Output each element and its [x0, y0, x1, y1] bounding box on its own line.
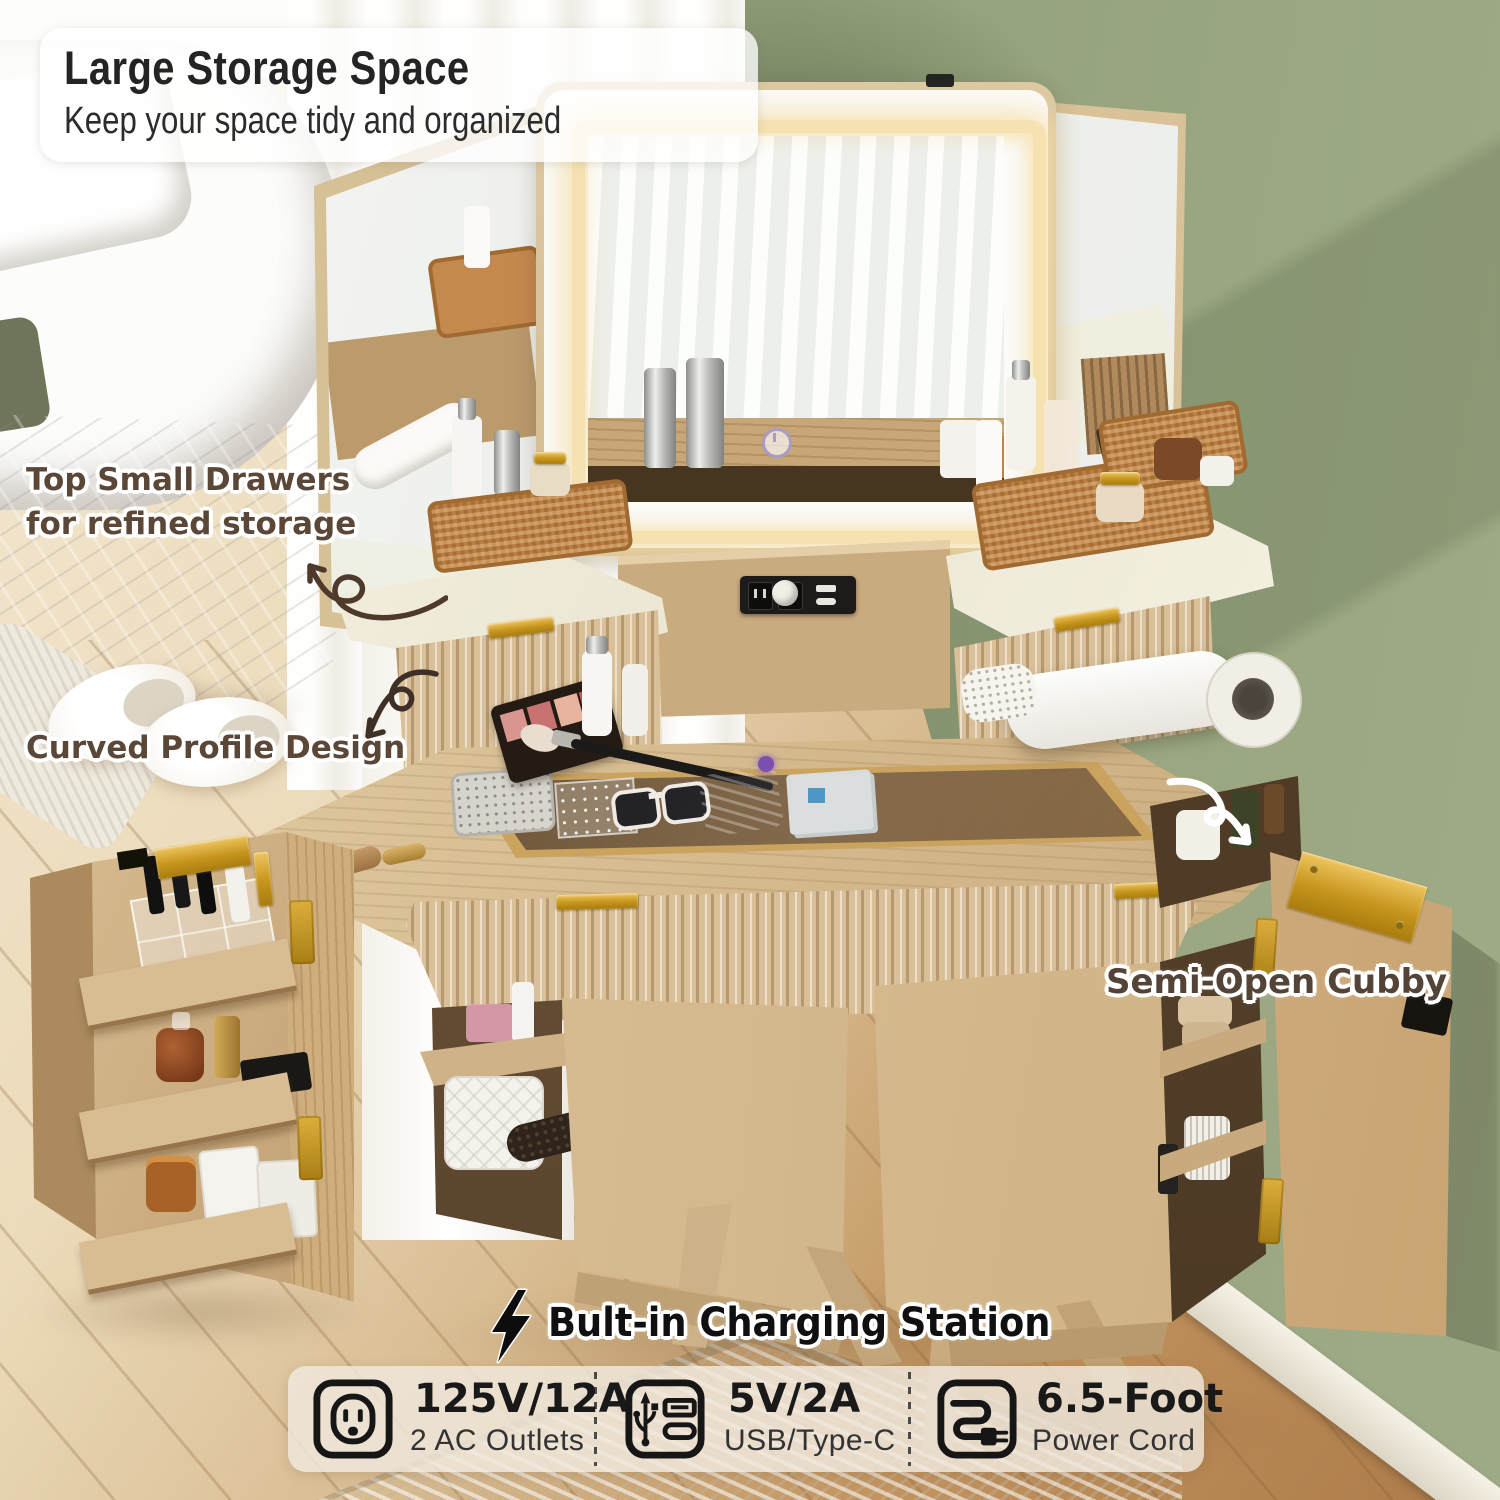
callout-top-drawers: Top Small Drawers for refined storage: [26, 458, 356, 546]
center-mirror: [588, 136, 1004, 502]
cream-jar: [530, 462, 570, 496]
pink-box: [466, 1004, 514, 1042]
amber-bottle: [1264, 784, 1284, 834]
cosmetic-bottle: [622, 664, 648, 736]
jar-lid: [534, 452, 566, 464]
spec-value: 5V/2A: [728, 1376, 860, 1422]
charging-station-title: Bult-in Charging Station: [548, 1300, 1050, 1346]
brown-jar: [1154, 438, 1202, 480]
amber-jar: [146, 1156, 196, 1212]
drawer-handle[interactable]: [556, 893, 638, 910]
hinge: [297, 1116, 323, 1181]
perfume-cap: [172, 1012, 190, 1030]
hinge: [289, 900, 315, 965]
jar-lid: [1100, 472, 1140, 485]
curved-arrow-icon: [1160, 776, 1260, 862]
cosmetic-bottle: [452, 416, 482, 498]
usb-a-port[interactable]: [816, 585, 836, 592]
pump-bottle: [512, 982, 534, 1042]
bottle-cap: [1012, 360, 1030, 380]
spec-label: Power Cord: [1032, 1424, 1195, 1458]
cosmetic-bottle: [494, 430, 520, 496]
hinge: [1258, 1177, 1285, 1244]
product-scene: Large Storage Space Keep your space tidy…: [0, 0, 1500, 1500]
charging-station-strip[interactable]: [740, 576, 856, 614]
callout-curved-profile: Curved Profile Design: [26, 726, 405, 770]
callout-line: Top Small Drawers: [26, 458, 356, 502]
callout-semi-open-cubby: Semi-Open Cubby: [1106, 960, 1447, 1004]
mirror-touch-button[interactable]: [762, 428, 792, 458]
ac-outlet-icon: [312, 1378, 394, 1460]
callout-line: Semi-Open Cubby: [1106, 960, 1447, 1004]
headline-subtitle: Keep your space tidy and organized: [64, 100, 670, 143]
spec-divider: [908, 1372, 911, 1466]
power-cord-icon: [936, 1378, 1018, 1460]
touch-light-reflection: [758, 756, 774, 772]
mirror-reflection-bottle: [464, 206, 490, 268]
pump-bottle: [1006, 376, 1036, 470]
curved-arrow-icon: [298, 540, 448, 624]
usb-c-port[interactable]: [816, 598, 836, 605]
bottle-cap: [458, 398, 476, 420]
cosmetic-bottle: [582, 650, 612, 736]
mirror-clip: [926, 74, 954, 87]
usb-type-c-icon: [624, 1378, 706, 1460]
lightning-icon: [486, 1288, 540, 1364]
spec-value: 125V/12A: [414, 1376, 630, 1422]
cream-jar: [1096, 482, 1144, 522]
ac-outlet[interactable]: [748, 582, 773, 610]
power-glyph-icon: [773, 433, 776, 442]
spec-label: USB/Type-C: [724, 1424, 896, 1458]
perfume-bottle: [156, 1028, 204, 1082]
mirror-reflection-bottle: [644, 368, 676, 468]
callout-line: Curved Profile Design: [26, 726, 405, 770]
gold-bottle: [214, 1016, 240, 1078]
hair-dryer-opening: [1232, 678, 1274, 720]
frosted-bottle: [1044, 400, 1078, 478]
spec-label: 2 AC Outlets: [410, 1424, 584, 1458]
shelf-door-unit: [24, 830, 358, 1312]
headline-title: Large Storage Space: [64, 40, 541, 95]
small-jar: [1200, 456, 1234, 486]
mirror-reflection-bottle: [686, 358, 724, 468]
bottle-cap: [586, 636, 608, 654]
spec-value: 6.5-Foot: [1036, 1376, 1223, 1422]
curved-arrow-icon: [352, 666, 444, 754]
plug: [772, 580, 798, 606]
